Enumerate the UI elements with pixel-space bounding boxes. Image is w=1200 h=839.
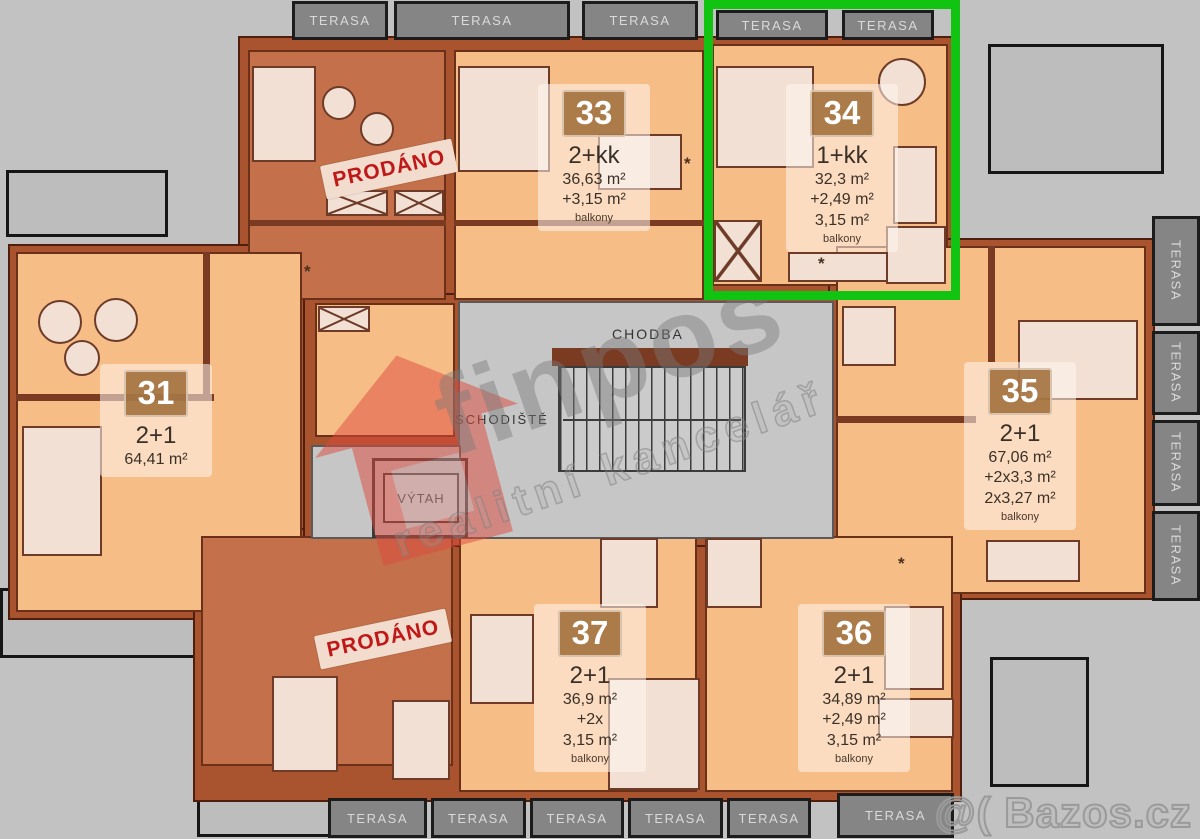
unit-area-label: 36,9 m² xyxy=(542,690,638,711)
terrace-bottom-5: TERASA xyxy=(727,798,811,838)
unit-balcony-note: balkony xyxy=(546,212,642,224)
wall-segment xyxy=(988,246,995,362)
bg-slab-top-left xyxy=(6,170,168,237)
kitchen-symbol: * xyxy=(684,154,691,174)
unit-number-badge: 33 xyxy=(562,90,627,137)
unit-number-badge: 35 xyxy=(988,368,1053,415)
kitchen-symbol: * xyxy=(304,262,311,282)
terrace-right-4: TERASA xyxy=(1152,511,1200,601)
furniture xyxy=(360,112,394,146)
furniture xyxy=(22,426,102,556)
terrace-right-2: TERASA xyxy=(1152,331,1200,415)
furniture xyxy=(706,538,762,608)
unit-layout-label: 2+kk xyxy=(546,142,642,170)
unit-area-label: 3,15 m² xyxy=(806,731,902,752)
furniture xyxy=(470,614,534,704)
unit-layout-label: 2+1 xyxy=(972,420,1068,448)
unit-area-label: +2x3,3 m² xyxy=(972,468,1068,489)
unit-area-label: 34,89 m² xyxy=(806,690,902,711)
terrace-bottom-4: TERASA xyxy=(628,798,723,838)
unit-layout-label: 2+1 xyxy=(108,422,204,450)
furniture xyxy=(458,66,550,172)
furniture xyxy=(318,306,370,332)
unit-number-badge: 36 xyxy=(822,610,887,657)
terrace-top-3: TERASA xyxy=(582,1,698,40)
terrace-right-1: TERASA xyxy=(1152,216,1200,326)
unit-balcony-note: balkony xyxy=(972,511,1068,523)
unit-area-label: 67,06 m² xyxy=(972,448,1068,469)
unit-area-label: 3,15 m² xyxy=(542,731,638,752)
furniture xyxy=(64,340,100,376)
furniture xyxy=(986,540,1080,582)
unit-layout-label: 2+1 xyxy=(806,662,902,690)
furniture xyxy=(252,66,316,162)
unit-card-31: 31 2+1 64,41 m² xyxy=(100,364,212,477)
terrace-bottom-1: TERASA xyxy=(328,798,427,838)
furniture xyxy=(322,86,356,120)
furniture xyxy=(272,676,338,772)
unit-card-36: 36 2+1 34,89 m² +2,49 m² 3,15 m² balkony xyxy=(798,604,910,772)
furniture xyxy=(94,298,138,342)
unit-area-label: +3,15 m² xyxy=(546,190,642,211)
furniture xyxy=(38,300,82,344)
unit-area-label: +2,49 m² xyxy=(806,710,902,731)
furniture xyxy=(394,190,444,216)
terrace-bottom-2: TERASA xyxy=(431,798,526,838)
unit-balcony-note: balkony xyxy=(806,753,902,765)
bg-slab-bottom-right xyxy=(990,657,1089,787)
unit-area-label: +2x xyxy=(542,710,638,731)
kitchen-symbol: * xyxy=(898,554,905,574)
unit-card-33: 33 2+kk 36,63 m² +3,15 m² balkony xyxy=(538,84,650,231)
terrace-top-2: TERASA xyxy=(394,1,570,40)
site-watermark: @( Bazos.cz xyxy=(935,789,1192,837)
unit-card-37: 37 2+1 36,9 m² +2x 3,15 m² balkony xyxy=(534,604,646,772)
unit-balcony-note: balkony xyxy=(542,753,638,765)
unit-card-35: 35 2+1 67,06 m² +2x3,3 m² 2x3,27 m² balk… xyxy=(964,362,1076,530)
wall-segment xyxy=(250,220,446,226)
terrace-bottom-3: TERASA xyxy=(530,798,624,838)
highlight-box-unit-34 xyxy=(704,0,960,300)
unit-area-label: 2x3,27 m² xyxy=(972,489,1068,510)
wall-segment xyxy=(836,416,976,423)
furniture xyxy=(600,538,658,608)
terrace-right-3: TERASA xyxy=(1152,420,1200,506)
unit-number-badge: 37 xyxy=(558,610,623,657)
unit-number-badge: 31 xyxy=(124,370,189,417)
unit-layout-label: 2+1 xyxy=(542,662,638,690)
terrace-top-1: TERASA xyxy=(292,1,388,40)
unit-area-label: 36,63 m² xyxy=(546,170,642,191)
bg-slab-top-right xyxy=(988,44,1164,174)
unit-area-label: 64,41 m² xyxy=(108,450,204,471)
floor-plan: * * * * VÝTAH CHODBA SCHODIŠTĚ TERASA TE… xyxy=(0,0,1200,839)
furniture xyxy=(392,700,450,780)
